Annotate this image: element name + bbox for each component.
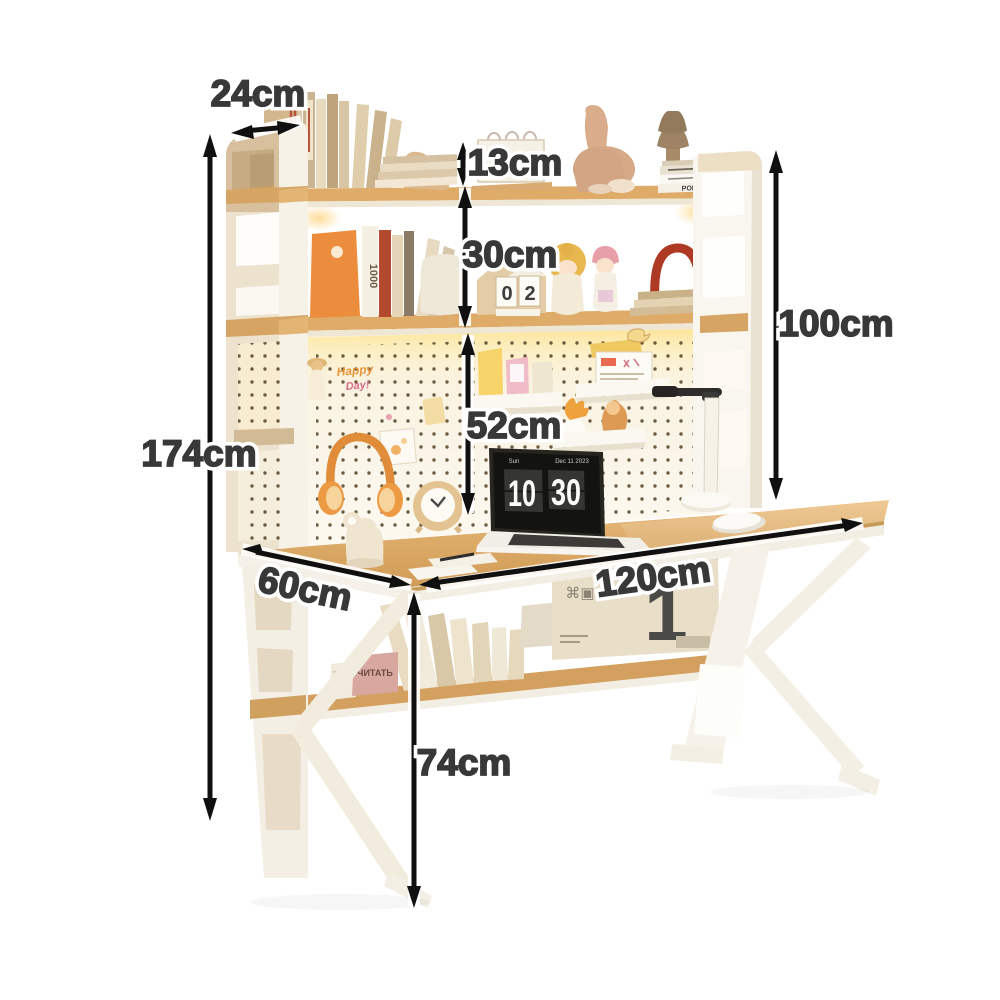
svg-text:13cm: 13cm (468, 142, 563, 183)
svg-text:Sun: Sun (509, 459, 520, 465)
svg-text:2: 2 (524, 283, 535, 305)
svg-text:1000: 1000 (367, 264, 379, 288)
svg-text:24cm: 24cm (211, 73, 306, 114)
svg-text:⌘▣: ⌘▣ (565, 585, 594, 602)
svg-text:ЧИТАТЬ: ЧИТАТЬ (357, 668, 393, 678)
svg-text:Dec 11 2023: Dec 11 2023 (555, 459, 589, 465)
svg-text:100cm: 100cm (778, 303, 893, 344)
svg-text:30cm: 30cm (463, 234, 558, 275)
svg-text:52cm: 52cm (467, 405, 562, 446)
svg-text:74cm: 74cm (417, 742, 512, 783)
svg-text:174cm: 174cm (141, 433, 256, 474)
svg-text:0: 0 (501, 283, 512, 305)
svg-text:10: 10 (508, 473, 536, 514)
svg-text:Day!: Day! (345, 379, 370, 393)
svg-text:30: 30 (551, 472, 581, 513)
